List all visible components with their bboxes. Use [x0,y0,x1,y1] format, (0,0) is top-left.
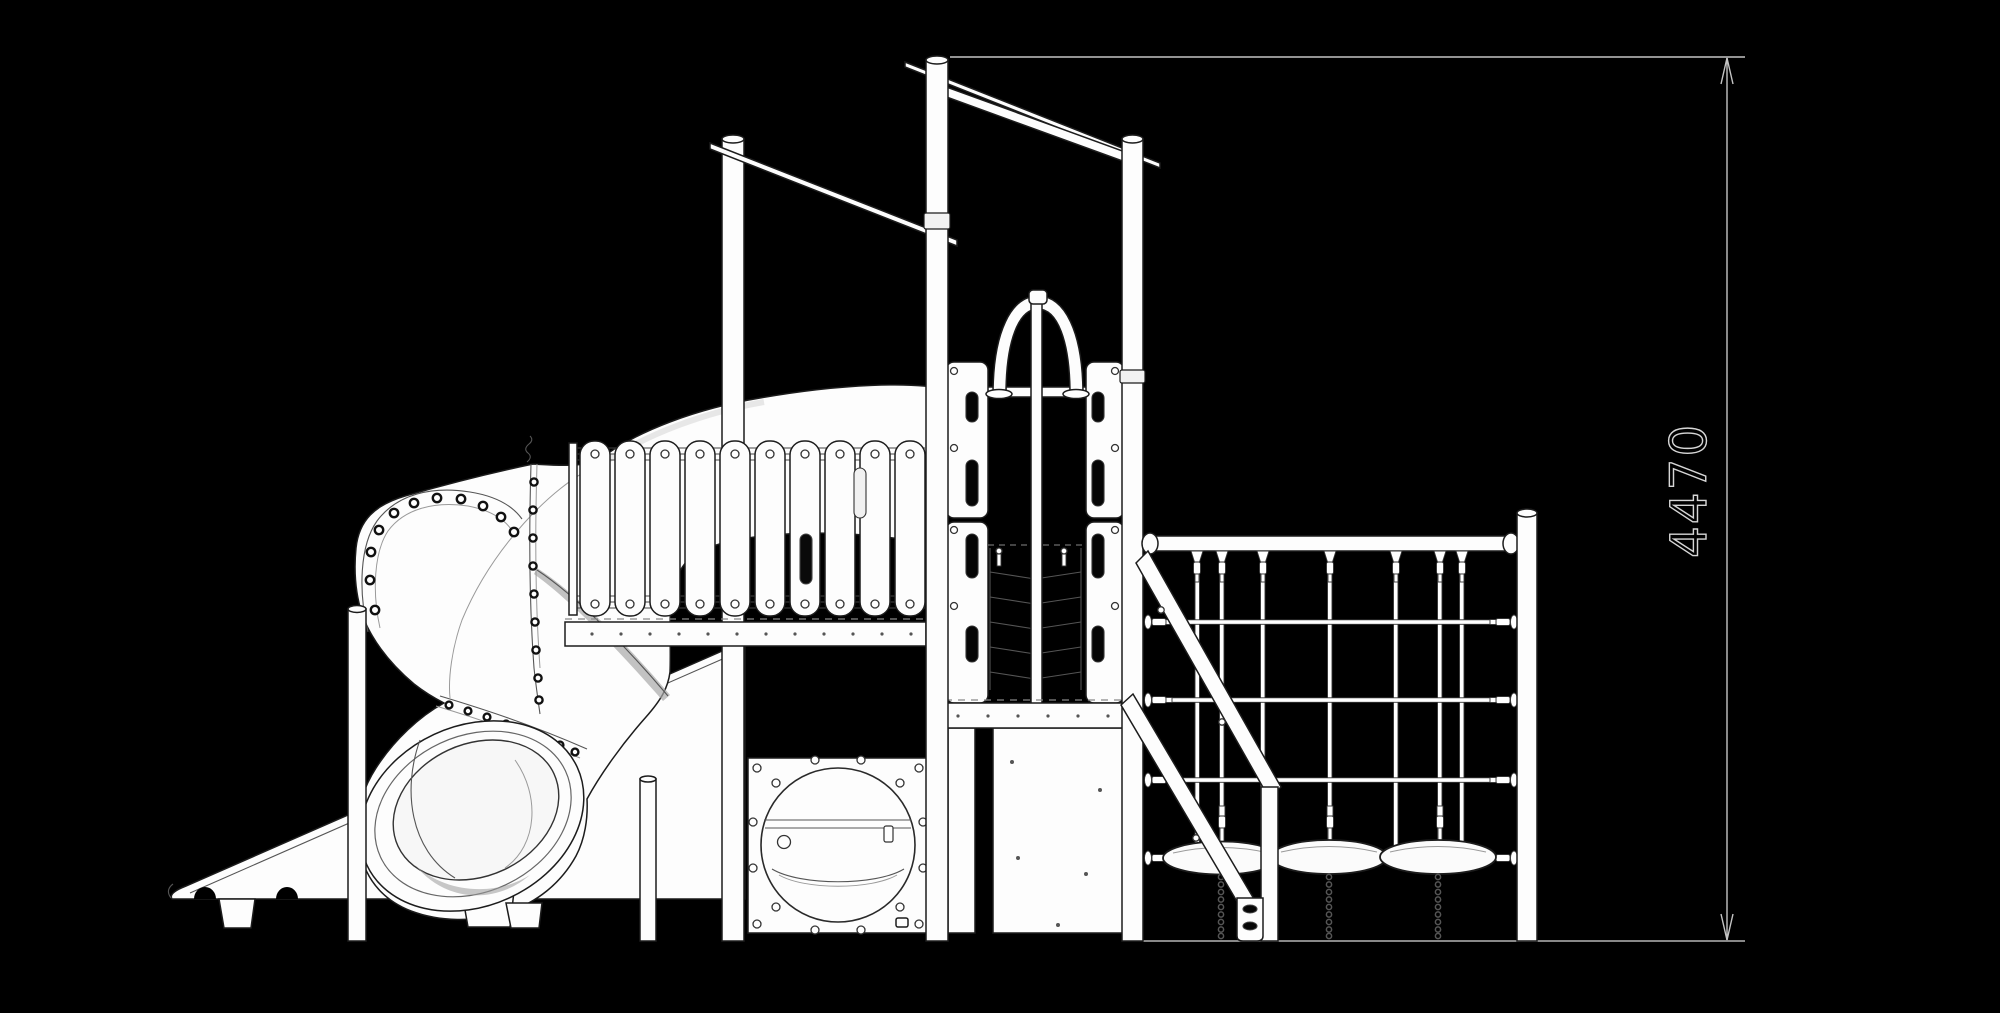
tower-post-right [1120,135,1145,941]
tower-post-middle [924,56,950,941]
post-coupling [1120,370,1145,383]
exit-foot [506,903,542,928]
post-coupling [924,213,950,229]
technical-drawing-page: 4470 [0,0,2000,1013]
access-ladder [1121,551,1281,941]
climbing-net [1142,533,1519,939]
panel-clamp [896,918,908,927]
playground-side-elevation-drawing: 4470 [0,0,2000,1013]
slide-foot [219,899,255,928]
climbing-tower [946,290,1124,704]
rope-tensioners-mid [1219,806,1444,842]
plank-handhold-slot [854,468,866,518]
pole-top-fitting [1029,290,1047,304]
stepping-pod [1271,840,1387,874]
support-post-center [640,776,656,941]
support-post-slide [348,606,366,942]
plank-climbing-wall [569,441,925,616]
porthole-window [761,768,915,922]
diagonal-rail-lower [710,143,957,246]
diagonal-rail-top-band [941,85,1128,163]
foot-slot [1243,922,1257,930]
net-top-rail [1143,536,1519,551]
main-deck [565,619,926,646]
deck-board [565,622,926,646]
foot-slot [1243,905,1257,913]
porthole-latch [884,826,893,842]
rail-trumpet-left [1142,533,1158,554]
fireman-pole [1029,290,1047,704]
arch-foot [1063,390,1089,399]
plank-handhold-slot [800,534,812,584]
stepping-pod [1380,840,1496,874]
arch-foot [986,390,1012,399]
dimension-value-label: 4470 [1660,423,1718,558]
rope-tensioners-top [1191,551,1468,582]
plank-wall-end-rail [569,443,577,615]
seam-squiggle [526,436,532,462]
net-end-post [1517,509,1537,941]
porthole-panel [748,756,928,934]
upper-rear-deck [945,700,1130,728]
